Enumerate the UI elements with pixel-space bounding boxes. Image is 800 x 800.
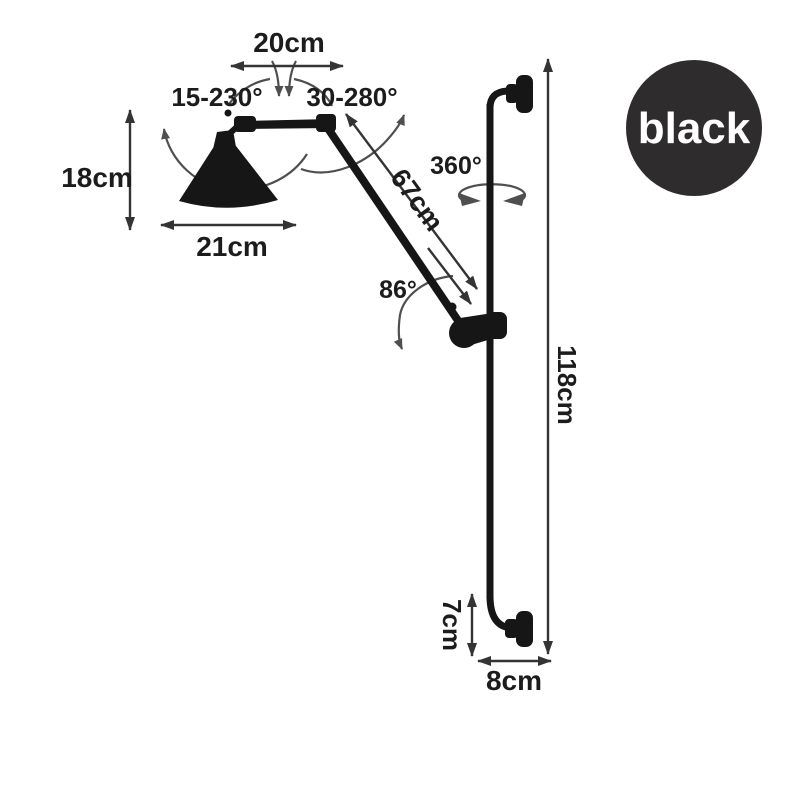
dim-label-base-height: 7cm — [437, 599, 467, 651]
arm-screw — [448, 303, 457, 312]
color-badge: black — [626, 60, 762, 196]
product-dimension-diagram: 20cm 15-230° 30-280° 18cm 21cm 67cm 360°… — [0, 0, 800, 800]
dim-arrow-arm-length-2 — [428, 248, 471, 304]
diagram-canvas: 20cm 15-230° 30-280° 18cm 21cm 67cm 360°… — [0, 0, 800, 800]
bottom-mount-plate — [516, 611, 533, 647]
angle-label-arm-rotation: 30-280° — [306, 82, 397, 112]
dim-label-pole-height: 118cm — [552, 345, 582, 425]
angle-label-elbow: 86° — [379, 276, 417, 304]
swivel-arrowhead-right-icon — [503, 193, 525, 206]
top-mount-plate — [516, 75, 533, 113]
dim-label-shade-diameter: 21cm — [196, 231, 268, 262]
dim-label-shade-height: 18cm — [61, 162, 133, 193]
angle-label-shade-rotation: 15-230° — [171, 82, 262, 112]
badge-label: black — [638, 104, 751, 153]
angle-label-swivel: 360° — [430, 152, 482, 180]
shade-neck — [213, 130, 236, 149]
dim-label-base-depth: 8cm — [486, 665, 542, 696]
swivel-arrowhead-left-icon — [459, 193, 481, 206]
dim-label-top-width: 20cm — [253, 27, 325, 58]
